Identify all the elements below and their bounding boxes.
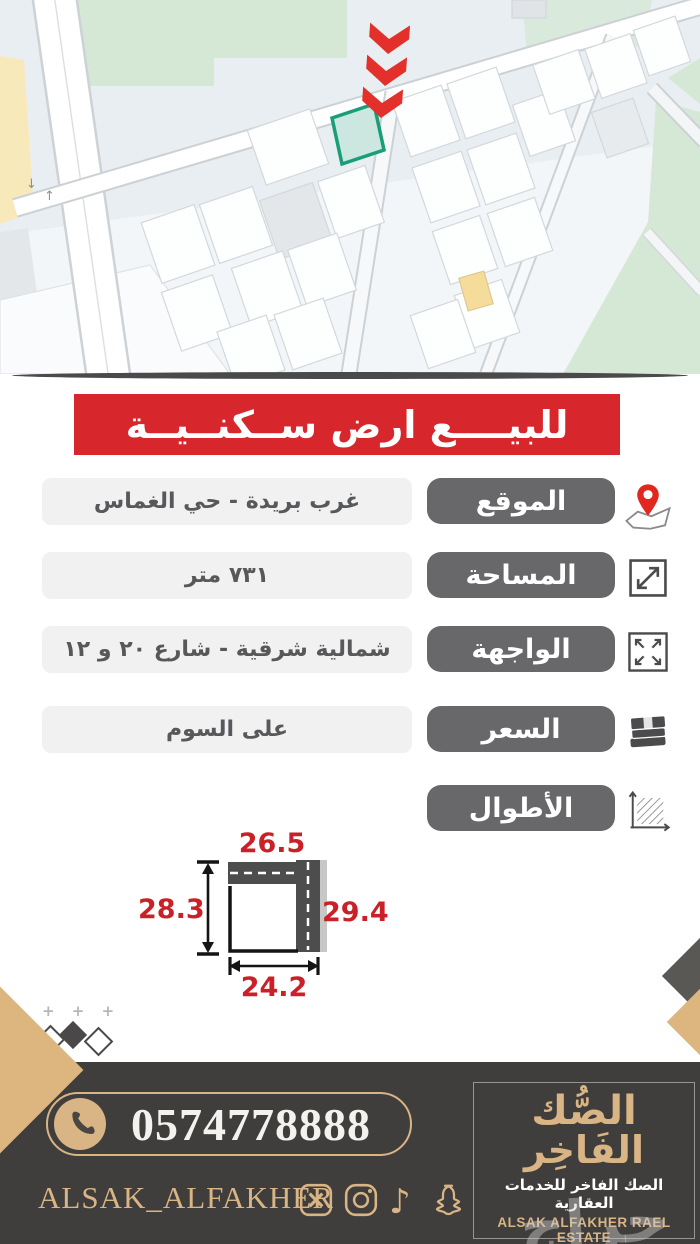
logo-arabic-line2: الفَاخِر bbox=[474, 1131, 694, 1169]
expand-arrows-icon bbox=[622, 626, 674, 678]
dimensions-icon bbox=[622, 785, 674, 837]
area-label: المساحة bbox=[427, 552, 615, 598]
instagram-icon bbox=[343, 1182, 379, 1218]
traffic-arrow-down: ↓ bbox=[26, 177, 37, 192]
social-handle: ALSAK_ALFAKHER bbox=[38, 1180, 334, 1216]
location-label: الموقع bbox=[427, 478, 615, 524]
facade-value: شمالية شرقية - شارع ٢٠ و ١٢ bbox=[42, 626, 412, 673]
phone-icon bbox=[54, 1098, 106, 1150]
price-value: على السوم bbox=[42, 706, 412, 753]
lengths-label: الأطوال bbox=[427, 785, 615, 831]
dimension-bottom: 24.2 bbox=[234, 972, 314, 1003]
traffic-arrow-up: ↑ bbox=[44, 189, 55, 204]
real-estate-flyer: ↓ ↑ للبيــــع ارض ســكنــيــة غرب بريدة … bbox=[0, 0, 700, 1244]
map-section: ↓ ↑ bbox=[0, 0, 700, 374]
plot-outline bbox=[230, 886, 298, 951]
tiktok-icon: ♪ bbox=[388, 1182, 418, 1218]
map-pin-icon bbox=[622, 480, 674, 532]
money-icon bbox=[622, 706, 674, 758]
x-twitter-icon bbox=[298, 1182, 334, 1218]
map-shadow-divider bbox=[12, 372, 688, 379]
area-resize-icon bbox=[622, 552, 674, 604]
phone-number: 0574778888 bbox=[106, 1098, 410, 1151]
social-icons: ♪ bbox=[298, 1182, 463, 1218]
plot-diagram: 26.5 28.3 29.4 24.2 bbox=[150, 820, 400, 1015]
logo-arabic-line1: الصُّك bbox=[474, 1091, 694, 1131]
location-value: غرب بريدة - حي الغماس bbox=[42, 478, 412, 525]
dimension-top: 26.5 bbox=[232, 828, 312, 859]
snapchat-icon bbox=[427, 1182, 463, 1218]
area-value: ٧٣١ متر bbox=[42, 552, 412, 599]
haraj-watermark: حراج bbox=[518, 1182, 671, 1244]
diamond-decoration bbox=[84, 1027, 114, 1057]
facade-label: الواجهة bbox=[427, 626, 615, 672]
diamond-decoration bbox=[59, 1021, 87, 1049]
dimension-left: 28.3 bbox=[138, 894, 204, 925]
phone-pill: 0574778888 bbox=[46, 1092, 412, 1156]
sale-banner-title: للبيــــع ارض ســكنــيــة bbox=[74, 394, 620, 455]
plus-marks-decoration: + + + bbox=[42, 1002, 120, 1020]
map-image: ↓ ↑ bbox=[0, 0, 700, 374]
dimension-right: 29.4 bbox=[322, 897, 388, 928]
svg-text:♪: ♪ bbox=[389, 1182, 411, 1218]
price-label: السعر bbox=[427, 706, 615, 752]
